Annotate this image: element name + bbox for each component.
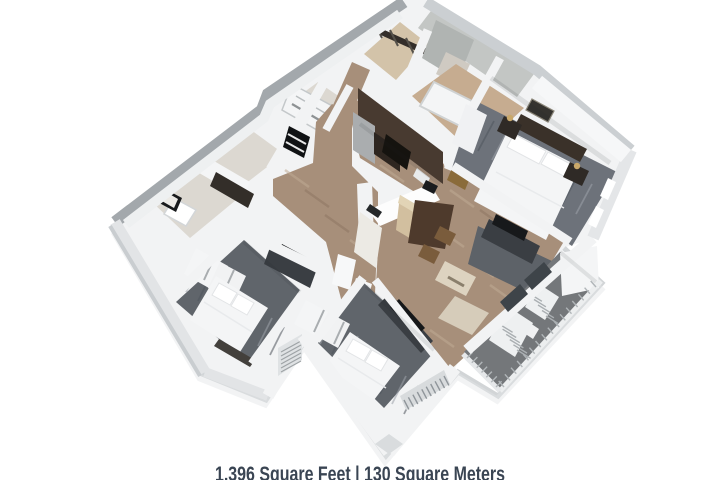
svg-text:1,396 Square Feet | 130 Square: 1,396 Square Feet | 130 Square Meters bbox=[215, 463, 505, 480]
